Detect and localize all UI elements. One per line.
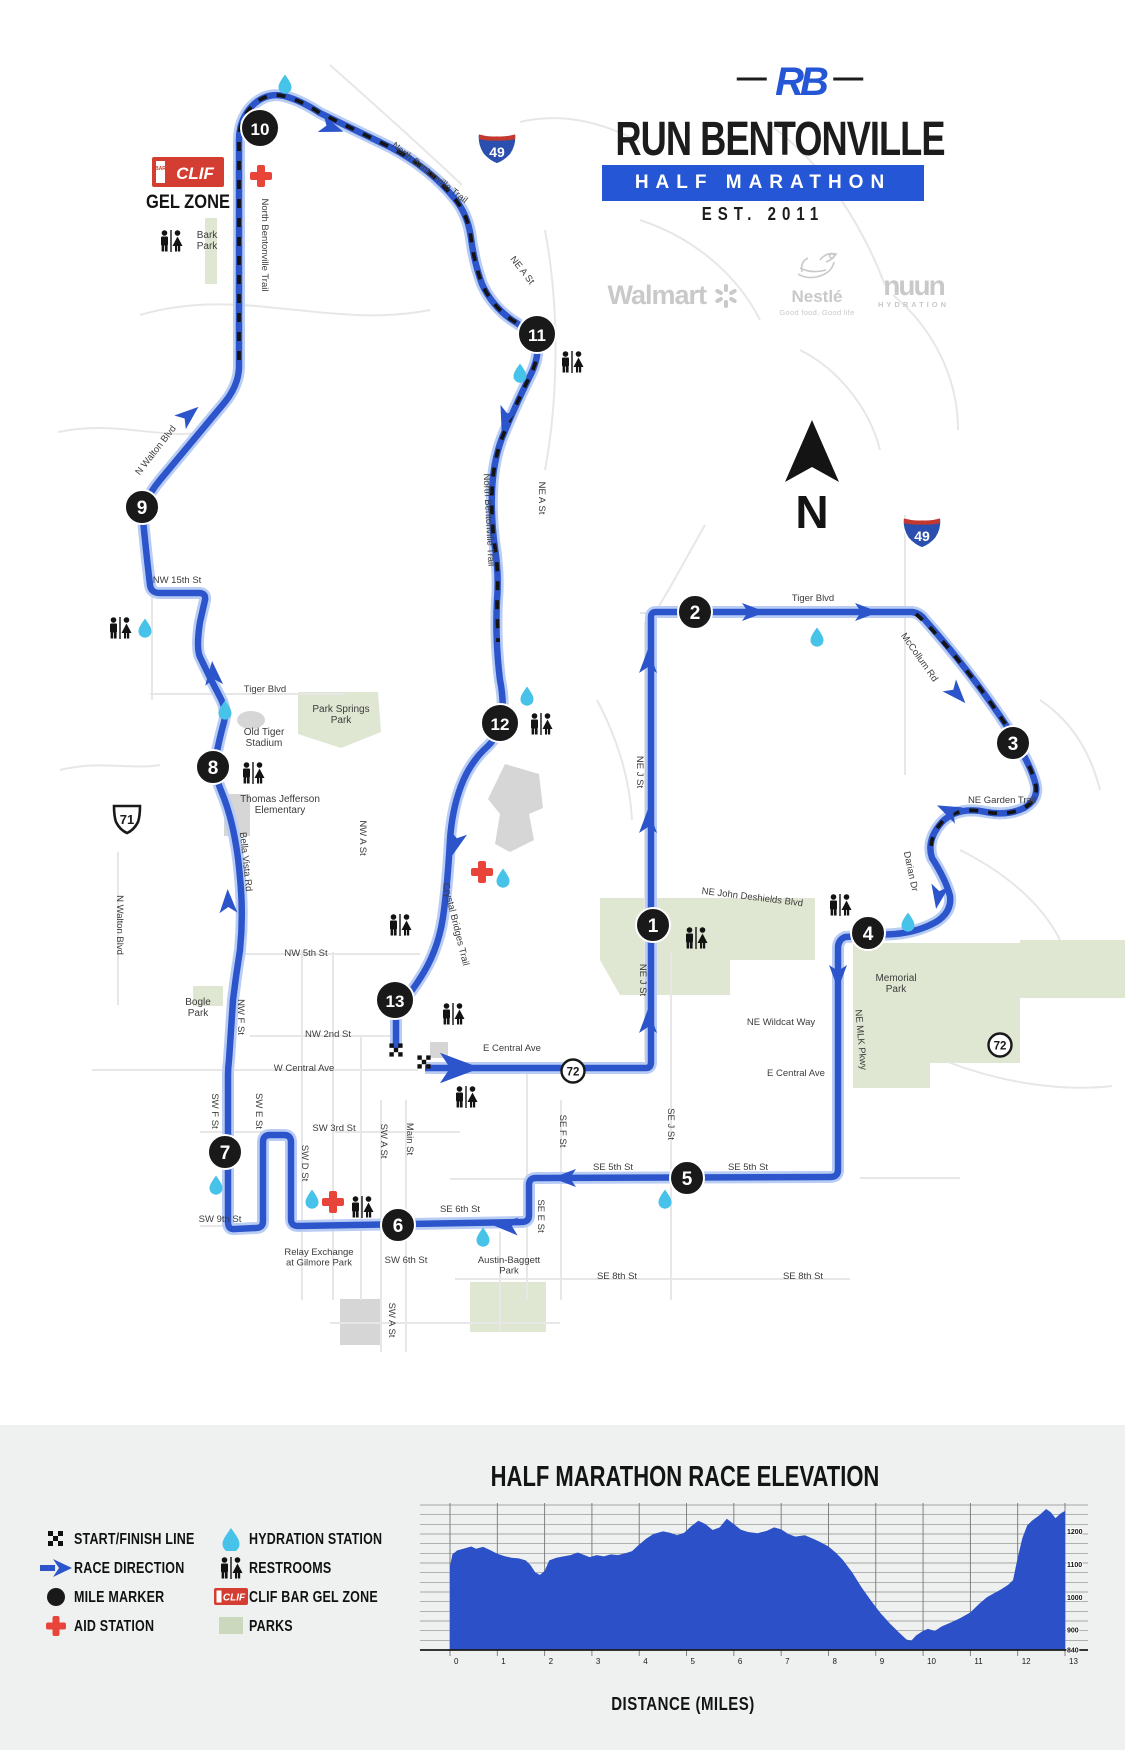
aid-station-icon <box>250 165 272 187</box>
map-label: NE J St <box>637 964 648 997</box>
restrooms-icon <box>443 1003 465 1025</box>
mile-marker-11: 11 <box>518 315 556 353</box>
restrooms-icon <box>352 1196 374 1218</box>
aid-station-icon <box>38 1615 74 1637</box>
logo-dash-left: — <box>737 61 775 94</box>
nestle-tagline: Good food, Good life <box>772 308 862 317</box>
svg-text:10: 10 <box>251 120 270 139</box>
nuun-wordmark: nuun <box>866 270 961 302</box>
map-label: NE A St <box>508 254 537 287</box>
north-arrow: N <box>785 420 839 538</box>
restrooms-icon <box>110 617 132 639</box>
svg-text:71: 71 <box>120 812 134 827</box>
legend-label: MILE MARKER <box>74 1588 164 1606</box>
map-legend: START/FINISH LINE RACE DIRECTION MILE MA… <box>38 1524 388 1640</box>
map-label: NW 2nd St <box>305 1029 351 1040</box>
svg-text:11: 11 <box>528 326 546 345</box>
legend-label: RACE DIRECTION <box>74 1559 184 1577</box>
svg-text:1: 1 <box>648 916 659 937</box>
map-label: SE 8th St <box>597 1271 637 1282</box>
svg-text:4: 4 <box>863 924 874 945</box>
legend-label: START/FINISH LINE <box>74 1530 195 1548</box>
mile-marker-8: 8 <box>196 750 230 784</box>
svg-text:72: 72 <box>994 1041 1007 1053</box>
hydration-droplet-icon <box>210 1176 223 1195</box>
restrooms-icon <box>562 351 584 373</box>
restrooms-icon <box>213 1556 249 1580</box>
race-direction-icon <box>38 1558 74 1578</box>
map-label: SW A St <box>378 1124 389 1159</box>
hydration-icon <box>213 1527 249 1551</box>
background-street <box>597 700 632 820</box>
hydration-droplet-icon <box>521 687 534 706</box>
map-label: SE 5th St <box>593 1162 633 1173</box>
sponsor-nuun: nuun HYDRATION <box>866 270 961 309</box>
restrooms-icon <box>161 230 183 252</box>
svg-text:7: 7 <box>220 1143 231 1164</box>
map-label: North Bentonville Trail <box>390 140 470 206</box>
background-street <box>948 1062 1112 1088</box>
background-street <box>1040 700 1100 790</box>
x-tick-label: 2 <box>549 1657 554 1666</box>
map-label: SE E St <box>535 1199 546 1233</box>
map-label: NW 5th St <box>284 948 328 959</box>
logo-dash-right: — <box>825 61 863 94</box>
map-label: Old TigerStadium <box>244 727 285 749</box>
map-label: E Central Ave <box>483 1043 541 1054</box>
background-street <box>140 304 430 315</box>
map-label: Darian Dr <box>901 850 920 892</box>
map-label: Relay Exchangeat Gilmore Park <box>284 1247 353 1269</box>
restrooms-icon <box>243 762 265 784</box>
legend-hydration: HYDRATION STATION <box>213 1524 388 1553</box>
background-street <box>960 850 1060 940</box>
aid-station-icon <box>322 1191 344 1213</box>
x-tick-label: 6 <box>738 1657 743 1666</box>
legend-label: AID STATION <box>74 1617 154 1635</box>
legend-race-direction: RACE DIRECTION <box>38 1553 213 1582</box>
restrooms-icon <box>830 894 852 916</box>
x-tick-label: 10 <box>927 1657 936 1666</box>
map-label: E Central Ave <box>767 1068 825 1079</box>
x-tick-label: 0 <box>454 1657 459 1666</box>
y-tick-label: 1200 <box>1067 1529 1083 1536</box>
hydration-droplet-icon <box>514 364 527 383</box>
event-banner: HALF MARATHON <box>602 165 924 201</box>
park-area <box>853 943 1020 1088</box>
svg-text:6: 6 <box>393 1216 404 1237</box>
mile-marker-6: 6 <box>381 1208 415 1242</box>
x-tick-label: 4 <box>643 1657 648 1666</box>
highway-72-shield-icon: 72 <box>562 1060 585 1083</box>
hydration-droplet-icon <box>497 869 510 888</box>
start-finish-icon <box>38 1530 74 1548</box>
event-logo: — RB — <box>640 60 960 112</box>
x-tick-label: 7 <box>785 1657 790 1666</box>
hydration-droplet-icon <box>477 1228 490 1247</box>
x-tick-label: 9 <box>880 1657 885 1666</box>
map-label: SW F St <box>209 1093 220 1129</box>
hydration-droplet-icon <box>659 1190 672 1209</box>
map-label: SW 6th St <box>385 1255 428 1266</box>
interstate-49-shield-icon: 49 <box>478 134 516 164</box>
legend-label: RESTROOMS <box>249 1559 331 1577</box>
legend-restrooms: RESTROOMS <box>213 1553 388 1582</box>
background-street <box>58 428 205 434</box>
mile-marker-icon <box>38 1587 74 1607</box>
nestle-nest-icon <box>790 248 844 282</box>
mile-marker-7: 7 <box>208 1135 242 1169</box>
park-area <box>1020 940 1125 998</box>
sponsor-nestle: Nestlé Good food, Good life <box>772 248 862 317</box>
svg-text:2: 2 <box>690 603 701 624</box>
map-label: SE 6th St <box>440 1204 480 1215</box>
x-tick-label: 8 <box>832 1657 837 1666</box>
parks-icon <box>213 1617 249 1634</box>
map-label: SW 9th St <box>199 1214 242 1225</box>
svg-text:8: 8 <box>208 758 219 779</box>
restrooms-icon <box>390 914 412 936</box>
svg-text:5: 5 <box>682 1169 693 1190</box>
svg-text:3: 3 <box>1008 734 1019 755</box>
north-letter: N <box>795 486 828 538</box>
map-label: NE A St <box>536 482 547 515</box>
y-tick-label: 840 <box>1067 1648 1079 1655</box>
legend-label: PARKS <box>249 1617 293 1635</box>
background-street <box>893 295 958 430</box>
mile-marker-1: 1 <box>636 908 670 942</box>
map-label: N Walton Blvd <box>114 895 125 955</box>
hydration-droplet-icon <box>139 619 152 638</box>
map-label: BoglePark <box>185 997 211 1019</box>
us-71-shield-icon: 71 <box>114 806 140 833</box>
svg-text:9: 9 <box>137 498 148 519</box>
hydration-droplet-icon <box>811 628 824 647</box>
legend-label: CLIF BAR GEL ZONE <box>249 1588 378 1606</box>
svg-text:CLIF: CLIF <box>223 1593 246 1604</box>
map-label: Main St <box>404 1123 415 1156</box>
mile-marker-10: 10 <box>241 109 279 147</box>
mile-marker-4: 4 <box>851 916 885 950</box>
legend-clif: CLIF CLIF BAR GEL ZONE <box>213 1582 388 1611</box>
banner-text: HALF MARATHON <box>635 172 891 193</box>
svg-text:BAR: BAR <box>155 166 166 172</box>
nestle-wordmark: Nestlé <box>772 287 862 307</box>
x-tick-label: 12 <box>1022 1657 1031 1666</box>
sponsor-walmart: Walmart <box>598 280 748 311</box>
gel-zone-label: GEL ZONE <box>146 191 230 212</box>
mile-marker-13: 13 <box>376 981 414 1019</box>
park-area <box>470 1282 546 1332</box>
legend-start-finish: START/FINISH LINE <box>38 1524 213 1553</box>
svg-text:49: 49 <box>914 528 930 544</box>
svg-text:12: 12 <box>491 715 510 734</box>
mile-marker-12: 12 <box>481 704 519 742</box>
aid-station-icon <box>471 861 493 883</box>
map-label: SE F St <box>557 1115 568 1148</box>
y-tick-label: 900 <box>1067 1628 1079 1635</box>
map-label: SE J St <box>665 1108 676 1140</box>
hydration-droplet-icon <box>279 75 292 94</box>
nuun-sub: HYDRATION <box>866 300 961 309</box>
x-tick-label: 11 <box>974 1657 983 1666</box>
hydration-droplet-icon <box>902 913 915 932</box>
map-label: North Bentonville Trail <box>259 199 270 292</box>
event-established: EST. 2011 <box>602 204 924 224</box>
map-label: SW A St <box>386 1303 397 1338</box>
map-label: SW 3rd St <box>312 1123 356 1134</box>
legend-label: HYDRATION STATION <box>249 1530 382 1548</box>
map-label: NW 15th St <box>153 575 202 586</box>
mile-marker-9: 9 <box>125 490 159 524</box>
clif-icon: CLIF <box>213 1588 249 1605</box>
walmart-wordmark: Walmart <box>607 280 706 310</box>
race-direction-arrow <box>943 679 972 709</box>
race-direction-arrow <box>219 889 238 914</box>
y-tick-label: 1000 <box>1067 1595 1083 1602</box>
svg-text:49: 49 <box>489 144 505 160</box>
logo-monogram: RB <box>775 60 825 104</box>
building-footprint <box>488 764 543 852</box>
map-label: SE 8th St <box>783 1271 823 1282</box>
map-label: NE Garden Trail <box>968 795 1036 806</box>
clif-gel-zone-callout: BARCLIFGEL ZONE <box>146 157 230 212</box>
map-label: NE J St <box>634 756 645 789</box>
highway-72-shield-icon: 72 <box>989 1034 1012 1057</box>
svg-text:72: 72 <box>567 1067 580 1079</box>
x-tick-label: 1 <box>501 1657 506 1666</box>
map-label: W Central Ave <box>274 1063 335 1074</box>
map-label: SW E St <box>253 1093 264 1129</box>
legend-parks: PARKS <box>213 1611 388 1640</box>
map-label: Austin-BaggettPark <box>478 1255 541 1277</box>
restrooms-icon <box>531 713 553 735</box>
x-tick-label: 5 <box>691 1657 696 1666</box>
legend-mile-marker: MILE MARKER <box>38 1582 213 1611</box>
map-label: SE 5th St <box>728 1162 768 1173</box>
background-street <box>60 765 160 770</box>
mile-marker-5: 5 <box>670 1161 704 1195</box>
chart-title: HALF MARATHON RACE ELEVATION <box>470 1460 900 1494</box>
map-graphics: 4949717272North Bentonville TrailNorth B… <box>58 65 1125 1352</box>
map-label: Thomas JeffersonElementary <box>240 794 320 816</box>
clif-brand: CLIF <box>176 164 214 183</box>
map-label: NW A St <box>357 820 368 856</box>
x-tick-label: 3 <box>596 1657 601 1666</box>
mile-marker-2: 2 <box>678 595 712 629</box>
hydration-droplet-icon <box>306 1190 319 1209</box>
y-tick-label: 1100 <box>1067 1562 1082 1569</box>
interstate-49-shield-icon: 49 <box>903 518 941 548</box>
svg-text:13: 13 <box>386 992 405 1011</box>
map-label: NW F St <box>235 999 246 1035</box>
restrooms-icon <box>456 1086 478 1108</box>
event-title: RUN BENTONVILLE <box>594 112 966 167</box>
map-label: Tiger Blvd <box>792 593 834 604</box>
park-area <box>600 898 815 995</box>
chart-x-axis-label: DISTANCE (MILES) <box>558 1694 808 1715</box>
walmart-spark-icon <box>713 283 739 309</box>
map-label: BarkPark <box>197 230 219 252</box>
run-bentonville-map-page: 4949717272North Bentonville TrailNorth B… <box>0 0 1125 1750</box>
x-tick-label: 13 <box>1069 1657 1078 1666</box>
mile-marker-3: 3 <box>996 726 1030 760</box>
map-label: SW D St <box>299 1145 310 1182</box>
map-label: Tiger Blvd <box>244 684 286 695</box>
legend-aid-station: AID STATION <box>38 1611 213 1640</box>
map-label: NE Wildcat Way <box>747 1017 816 1028</box>
